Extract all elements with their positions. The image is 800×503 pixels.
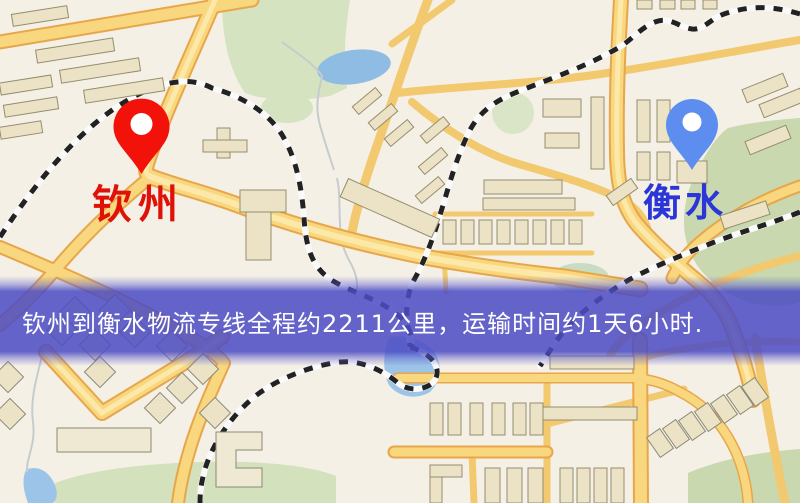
route-info-banner: 钦州到衡水物流专线全程约2211公里，运输时间约1天6小时. [0,276,800,366]
map-image: 钦州 衡水 [0,0,800,503]
route-info-text: 钦州到衡水物流专线全程约2211公里，运输时间约1天6小时. [0,304,703,339]
route-map: 钦州 衡水 钦州到衡水物流专线全程约2211公里，运输时间约1天6小时. [0,0,800,503]
origin-city-label: 钦州 [92,182,184,228]
destination-city-label: 衡水 [643,181,727,225]
